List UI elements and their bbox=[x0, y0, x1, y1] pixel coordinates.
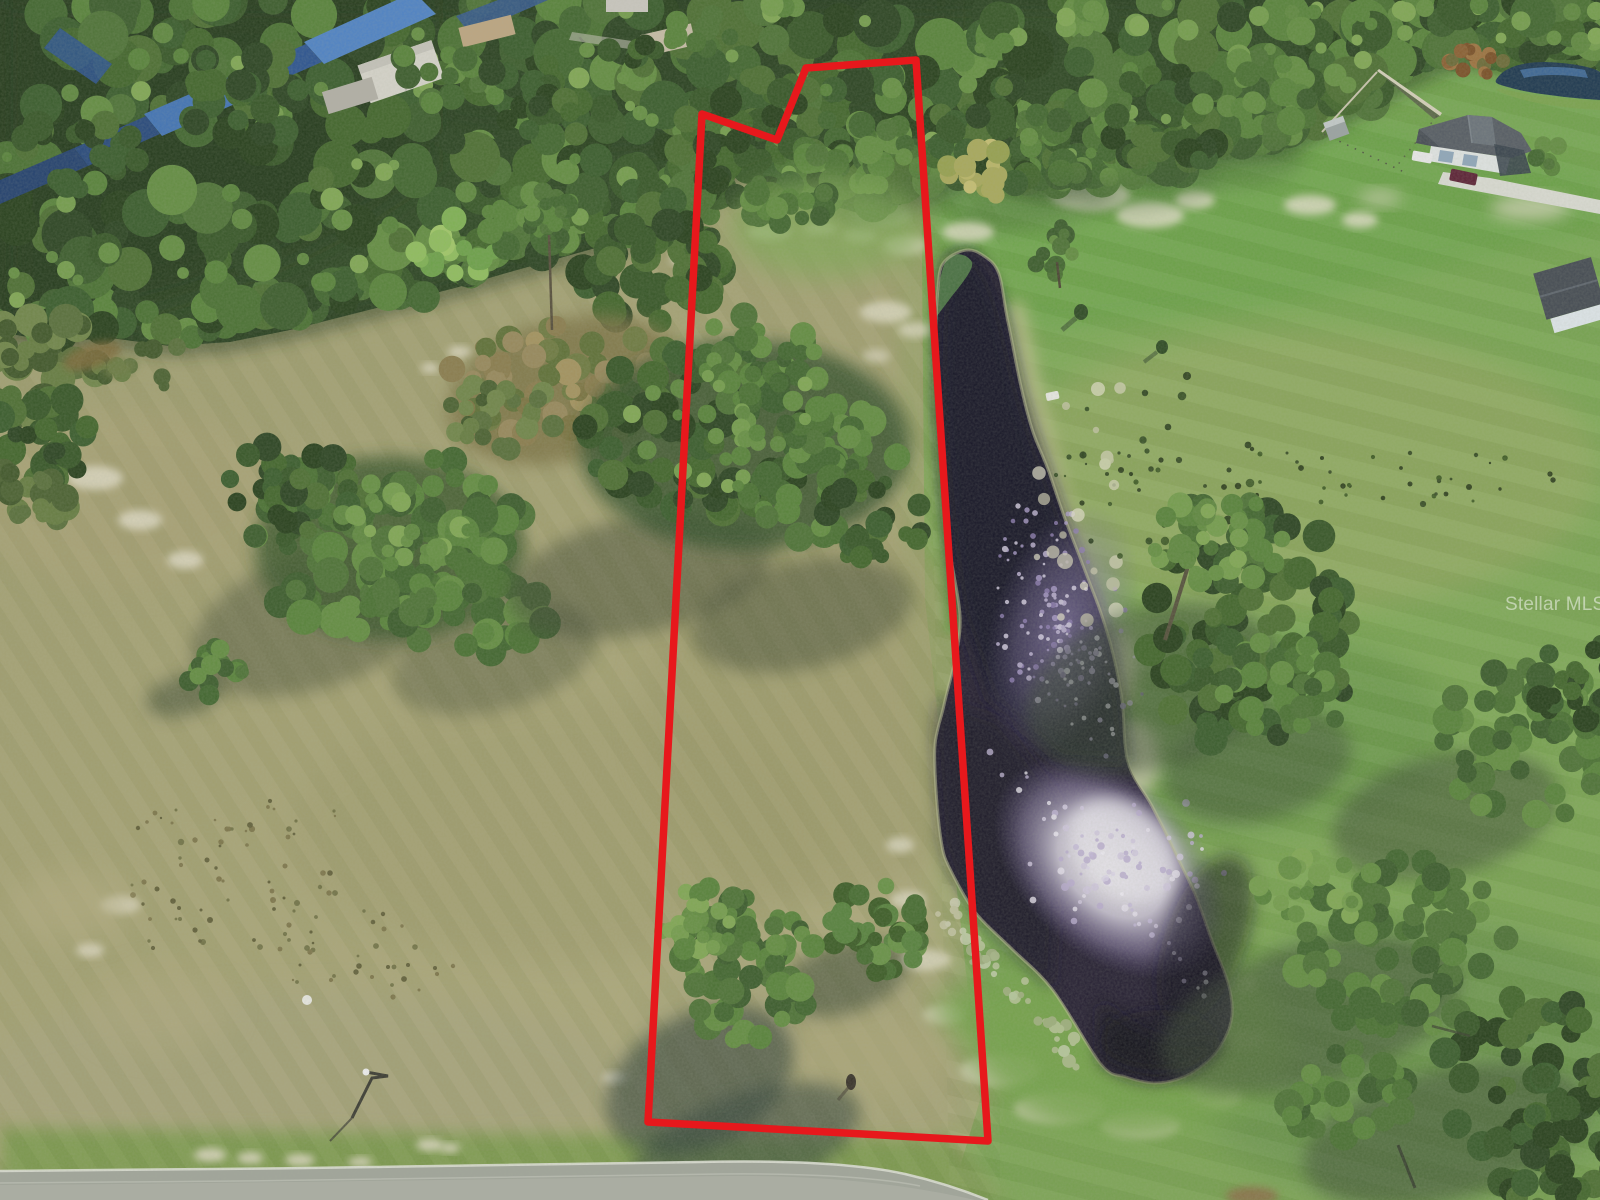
svg-text:Stellar MLS: Stellar MLS bbox=[1505, 594, 1600, 615]
